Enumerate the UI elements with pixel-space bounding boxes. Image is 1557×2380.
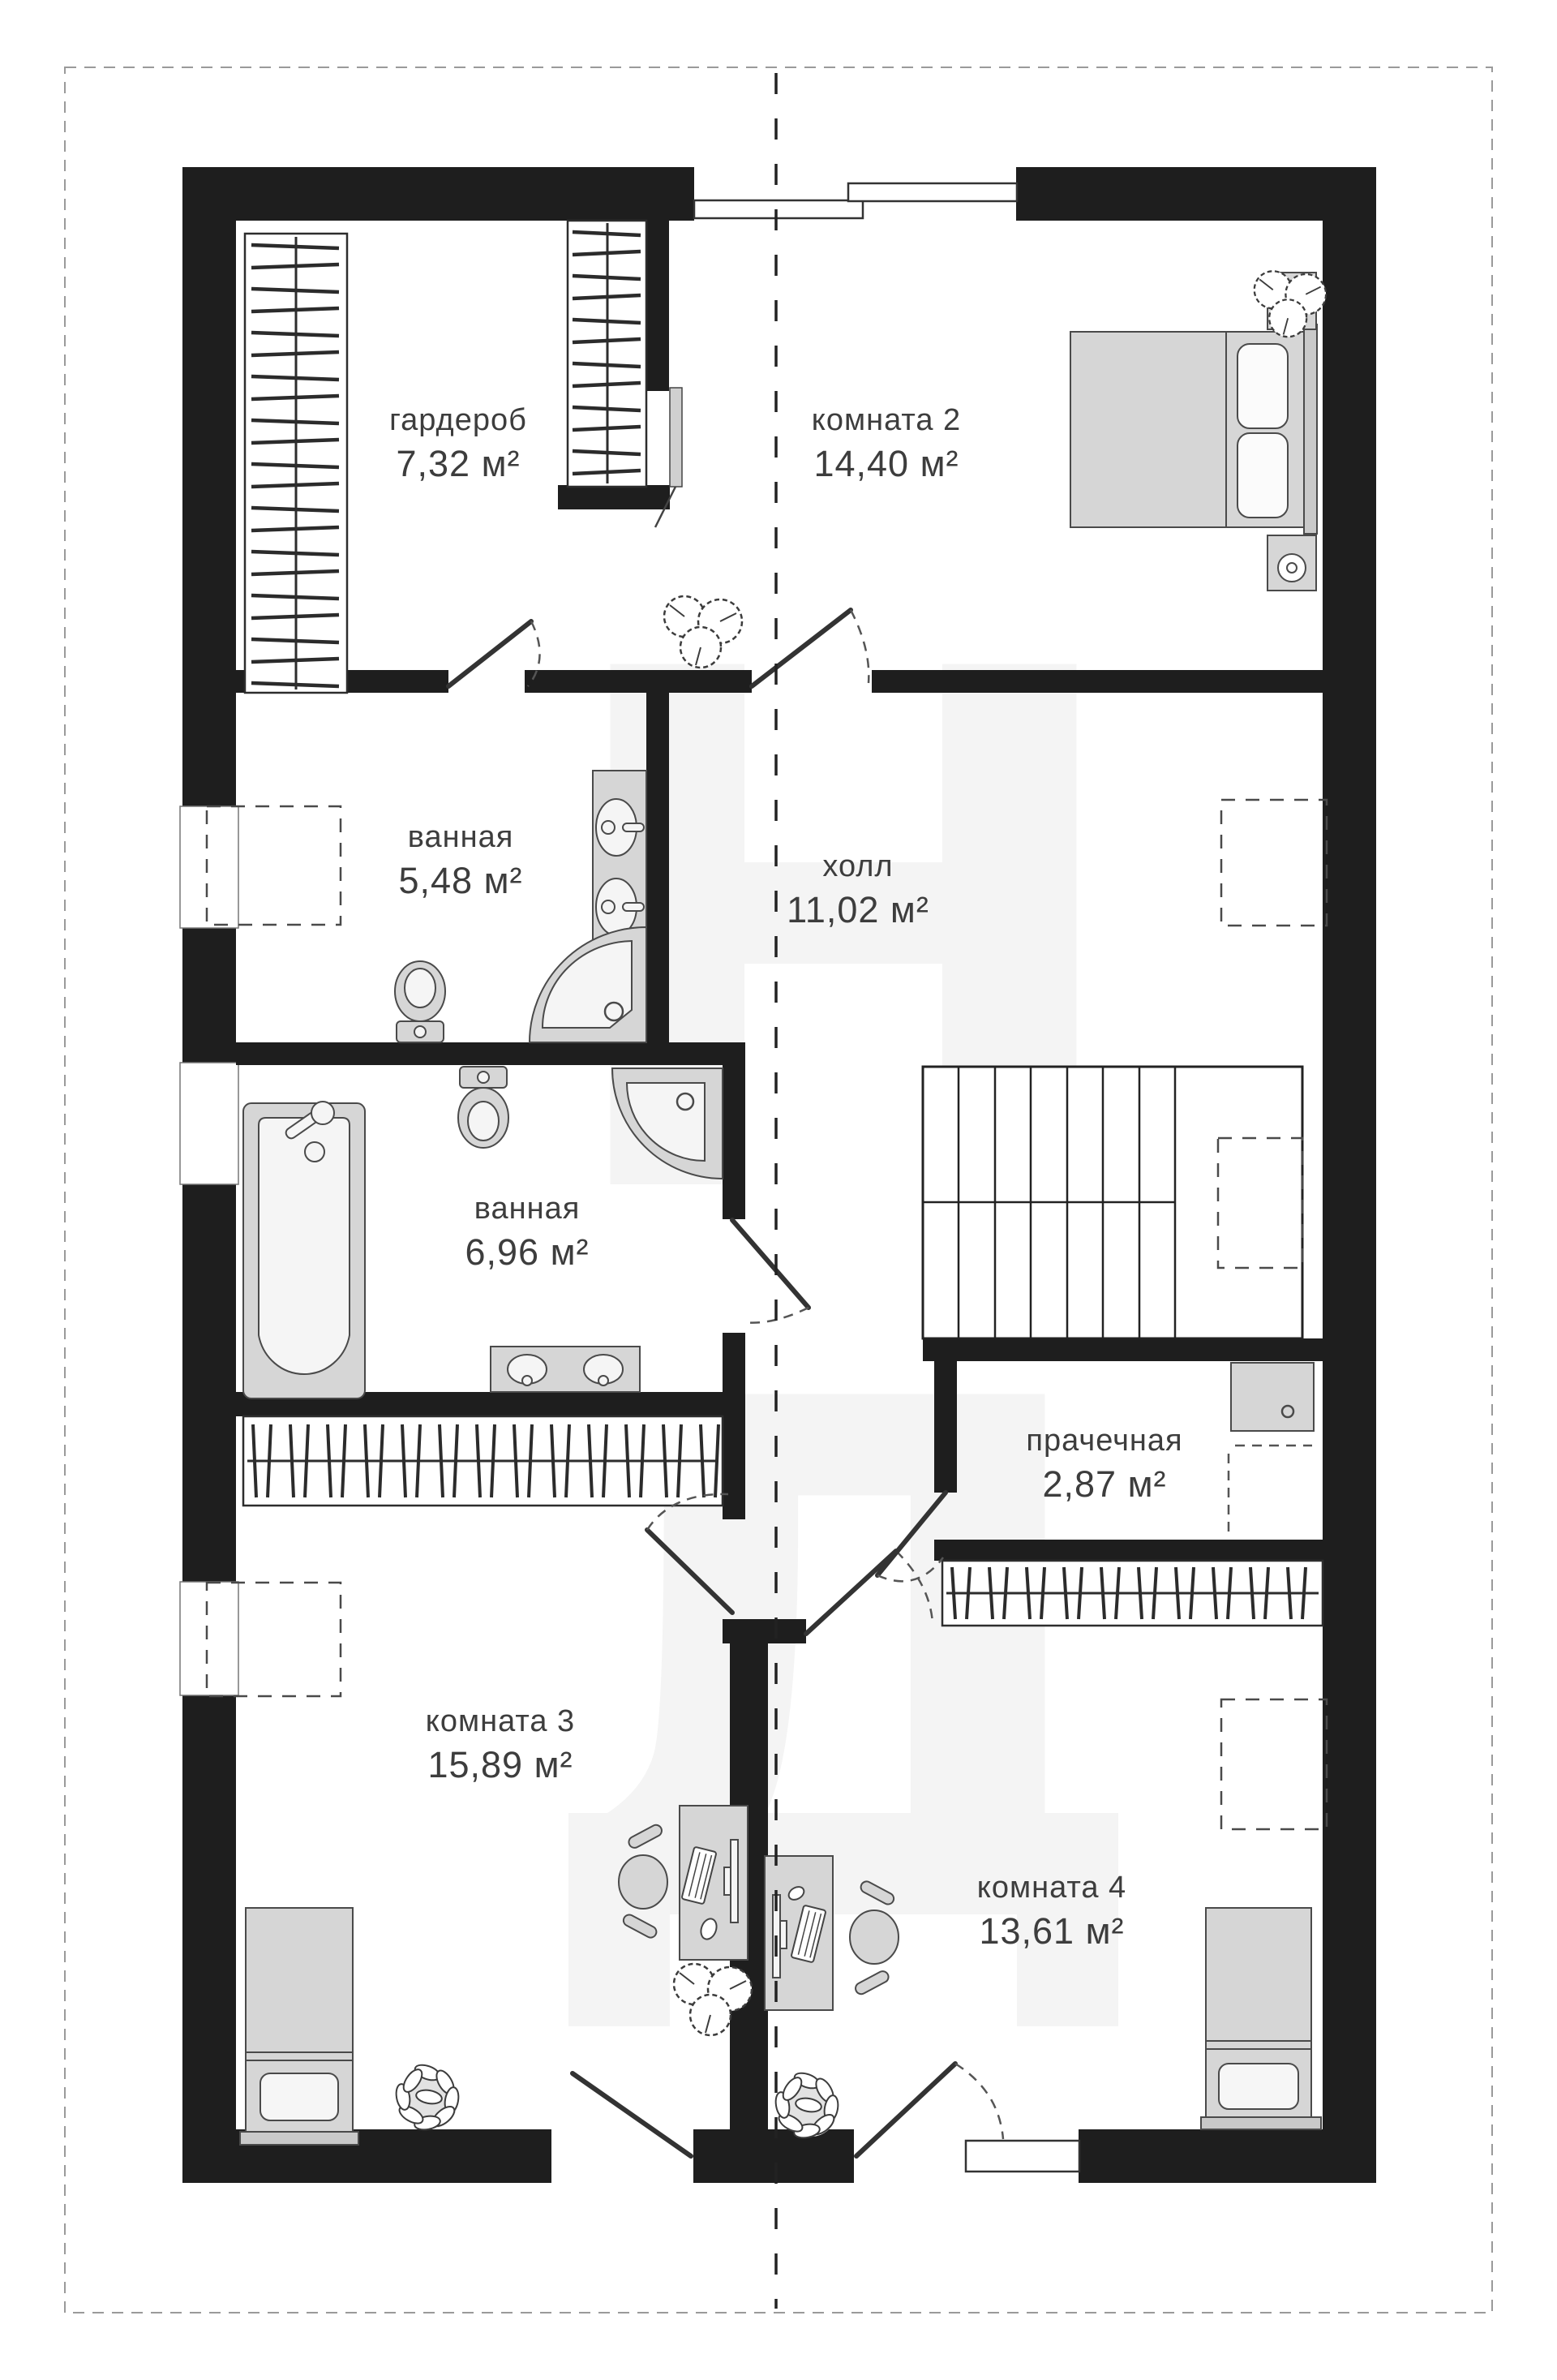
washing-machine	[1231, 1363, 1314, 1431]
wall-bath2-right-upper	[723, 1065, 745, 1219]
wall-top-right	[1016, 167, 1376, 221]
room-name: комната 4	[977, 1868, 1126, 1908]
wall-laundry-bottom	[934, 1540, 1323, 1561]
wall-b	[236, 1042, 745, 1065]
room-name: комната 3	[426, 1702, 575, 1742]
door-wardrobe	[448, 621, 531, 686]
room-area: 13,61 м²	[977, 1908, 1126, 1956]
monitor	[731, 1840, 738, 1922]
window-top-1	[694, 200, 863, 218]
wall-bath1-hall	[646, 670, 669, 1065]
room-label-room4: комната 4 13,61 м²	[977, 1868, 1126, 1956]
niche-right-3	[1221, 1699, 1327, 1829]
room4-bed	[1201, 1908, 1321, 2129]
room-label-laundry: прачечная 2,87 м²	[1026, 1421, 1182, 1509]
door-leaf-wardrobe-room2	[670, 388, 682, 487]
room-label-room3: комната 3 15,89 м²	[426, 1702, 575, 1789]
room-area: 5,48 м²	[398, 857, 522, 905]
floor-plan-drawing: Н Д	[0, 0, 1557, 2380]
laundry-fixtures	[1229, 1363, 1314, 1538]
wardrobe-right	[568, 221, 646, 487]
room-name: ванная	[465, 1189, 589, 1229]
wardrobe-left	[245, 234, 347, 693]
room-label-bathroom2: ванная 6,96 м²	[465, 1189, 589, 1277]
wall-laundry-left	[934, 1361, 957, 1493]
toilet	[395, 961, 445, 1042]
pillow	[1237, 344, 1288, 428]
window-bottom	[966, 2141, 1079, 2172]
room-name: прачечная	[1026, 1421, 1182, 1461]
window-left-1	[180, 806, 238, 928]
headboard	[1304, 324, 1317, 534]
room-name: холл	[787, 847, 929, 887]
wall-bottom-right	[1079, 2129, 1376, 2183]
pillow	[1219, 2064, 1298, 2109]
footboard	[1201, 2117, 1321, 2129]
niche-right-1	[1221, 800, 1327, 926]
double-sink-counter	[593, 771, 646, 954]
room3-desk	[680, 1806, 748, 1960]
bathroom1-fixtures	[395, 771, 646, 1042]
door-bottom-left	[573, 2073, 691, 2156]
wall-under-stairs	[923, 1338, 1323, 1361]
wardrobe-end-cap	[558, 485, 670, 509]
wall-partition-wardrobe	[646, 221, 669, 391]
footboard	[240, 2132, 358, 2145]
window-top-2	[848, 183, 1017, 201]
room-label-bathroom1: ванная 5,48 м²	[398, 818, 522, 905]
double-sink-counter	[491, 1347, 640, 1392]
wall-right	[1323, 167, 1376, 2183]
pillow	[260, 2073, 338, 2120]
bathtub	[243, 1102, 365, 1398]
toilet	[458, 1067, 508, 1148]
wall-corridor-stub	[723, 1619, 806, 1643]
room-area: 15,89 м²	[426, 1742, 575, 1789]
room-area: 14,40 м²	[812, 440, 961, 488]
room-name: гардероб	[389, 401, 527, 440]
window-left-2	[180, 1063, 238, 1184]
plant-ficus	[394, 2062, 460, 2132]
wall-bottom-left	[182, 2129, 551, 2183]
window-left-3	[180, 1582, 238, 1695]
wall-a3	[872, 670, 1323, 693]
pillow	[1237, 433, 1288, 518]
closet-room3	[243, 1416, 723, 1506]
room-name: ванная	[398, 818, 522, 857]
wall-top-left	[182, 167, 694, 221]
room-area: 11,02 м²	[787, 887, 929, 934]
staircase	[923, 1067, 1302, 1338]
room-area: 7,32 м²	[389, 440, 527, 488]
closet-room4	[942, 1561, 1323, 1626]
wall-bath2-right-lower	[723, 1333, 745, 1519]
room-label-wardrobe: гардероб 7,32 м²	[389, 401, 527, 488]
room-label-hall: холл 11,02 м²	[787, 847, 929, 934]
floor-plan: Н Д	[0, 0, 1557, 2380]
room-area: 6,96 м²	[465, 1229, 589, 1277]
wall-bottom-center	[693, 2129, 854, 2183]
wall-a2	[525, 670, 752, 693]
bed-blanket	[1070, 332, 1226, 527]
room-name: комната 2	[812, 401, 961, 440]
room3-bed	[240, 1908, 358, 2145]
room-label-room2: комната 2 14,40 м²	[812, 401, 961, 488]
lamp	[1278, 554, 1306, 582]
room-area: 2,87 м²	[1026, 1461, 1182, 1509]
